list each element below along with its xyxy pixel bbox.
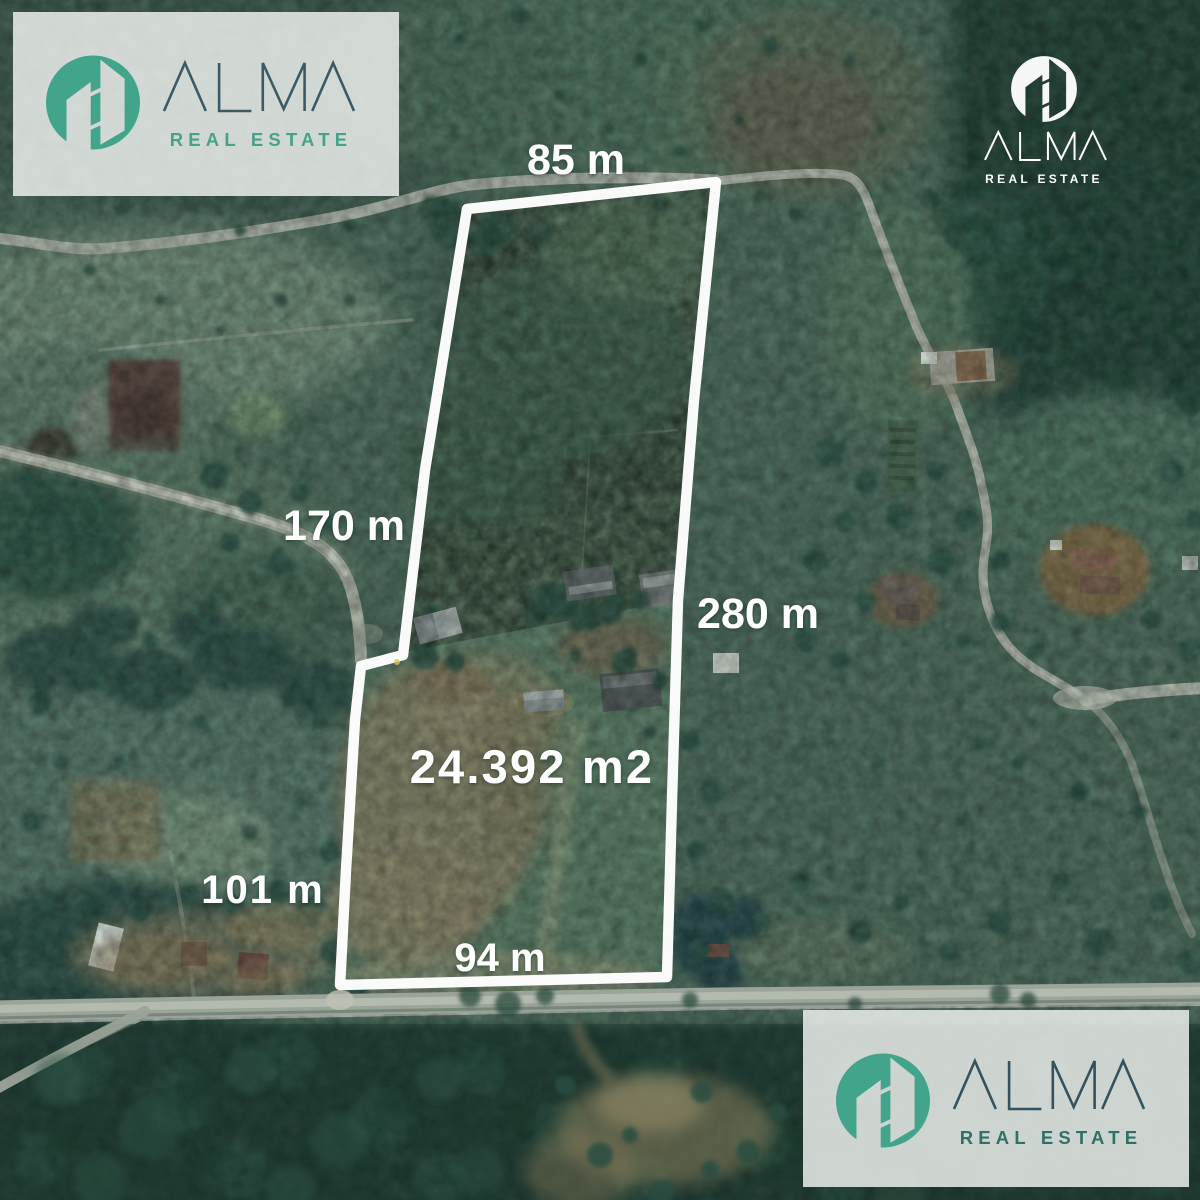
svg-text:REAL ESTATE: REAL ESTATE xyxy=(170,129,353,150)
svg-text:170 m: 170 m xyxy=(283,502,405,550)
svg-text:24.392 m2: 24.392 m2 xyxy=(410,740,655,793)
svg-text:REAL ESTATE: REAL ESTATE xyxy=(960,1127,1143,1148)
svg-text:REAL ESTATE: REAL ESTATE xyxy=(985,172,1103,186)
svg-text:280 m: 280 m xyxy=(697,590,819,638)
svg-text:101 m: 101 m xyxy=(201,868,324,912)
svg-text:94 m: 94 m xyxy=(454,936,545,980)
svg-text:85 m: 85 m xyxy=(527,136,625,184)
